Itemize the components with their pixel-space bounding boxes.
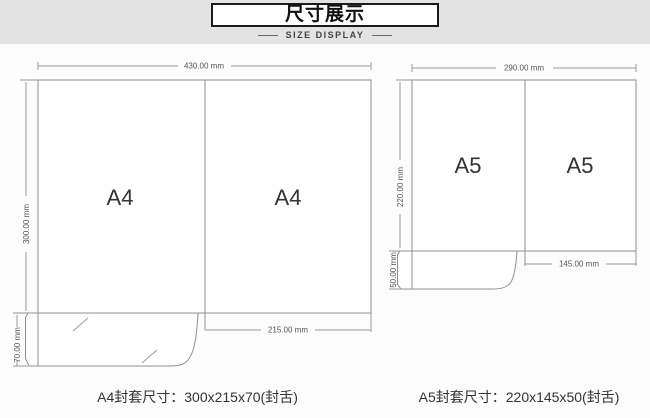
a4-panel-width-label: 215.00 mm [268, 326, 308, 335]
a5-sheet-outline [412, 80, 636, 251]
a4-right-panel-label: A4 [275, 185, 302, 210]
section-subtitle: SIZE DISPLAY [286, 30, 365, 40]
a4-left-panel-label: A4 [107, 185, 134, 210]
a4-total-width-label: 430.00 mm [184, 62, 224, 71]
subtitle-right-dash [372, 35, 392, 36]
a5-diagram: 290.00 mm 220.00 mm 50.00 mm 145.00 mm A… [385, 55, 647, 300]
a5-total-height-label: 220.00 mm [396, 167, 405, 207]
a4-size-caption: A4封套尺寸：300x215x70(封舌) [10, 387, 385, 407]
size-display-page: 尺寸展示 SIZE DISPLAY [0, 0, 650, 418]
a5-total-width-label: 290.00 mm [504, 64, 544, 73]
a4-pocket-height-label: 70.00 mm [13, 327, 22, 363]
a4-total-height-label: 300.00 mm [22, 204, 31, 244]
section-title: 尺寸展示 [285, 4, 365, 25]
section-subtitle-row: SIZE DISPLAY [0, 30, 650, 40]
a5-right-panel-label: A5 [567, 153, 594, 178]
a4-diagram: 430.00 mm 300.00 mm 70.00 mm 215.00 mm A… [10, 55, 380, 380]
a4-pocket-flap [26, 313, 199, 366]
a5-panel-width-label: 145.00 mm [559, 260, 599, 269]
section-title-box: 尺寸展示 [211, 3, 439, 27]
a5-pocket-flap [398, 251, 518, 289]
a5-left-panel-label: A5 [455, 153, 482, 178]
subtitle-left-dash [258, 35, 278, 36]
a5-pocket-height-label: 50.00 mm [389, 252, 398, 288]
a5-size-caption: A5封套尺寸：220x145x50(封舌) [385, 387, 650, 407]
